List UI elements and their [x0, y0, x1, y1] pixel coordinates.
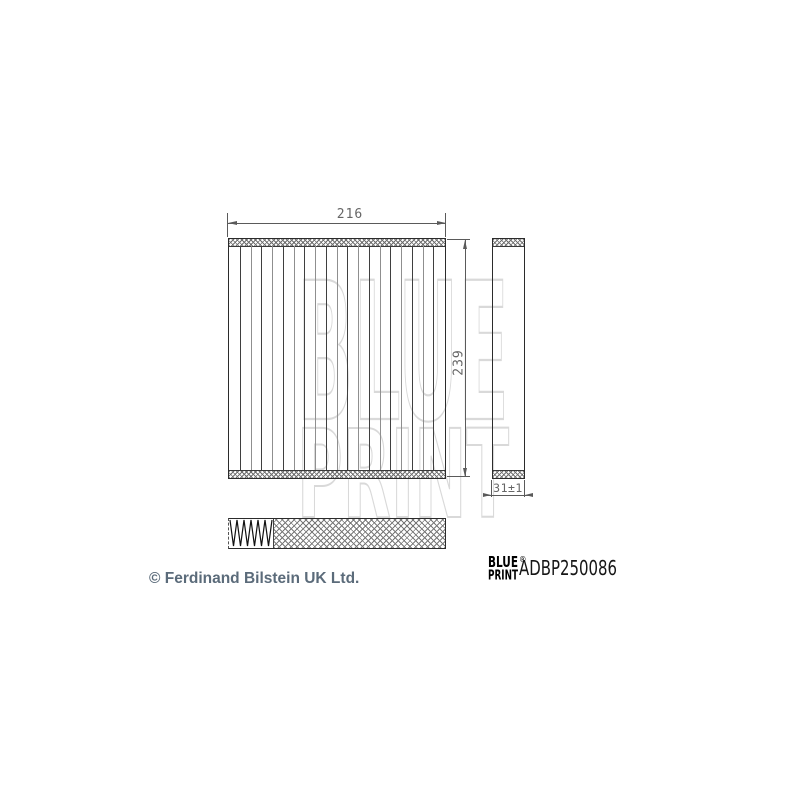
- copyright-notice: © Ferdinand Bilstein UK Ltd.: [149, 570, 359, 588]
- pleat-line: [337, 246, 338, 471]
- pleat-line: [326, 246, 327, 471]
- pleat-line: [390, 246, 391, 471]
- pleat-line: [380, 246, 381, 471]
- pleat-line: [358, 246, 359, 471]
- pleated-media-zigzag: [229, 519, 273, 548]
- front-view-pleats: [229, 246, 445, 471]
- dim-239-arrow-bottom: [463, 468, 467, 477]
- dim-216-line: [228, 223, 446, 224]
- pleat-line: [272, 246, 273, 471]
- pleat-line: [240, 246, 241, 471]
- part-number: ADBP250086: [519, 555, 631, 583]
- zigzag-lines: [229, 519, 273, 547]
- pleat-line: [412, 246, 413, 471]
- filter-front-view: [228, 238, 446, 479]
- pleat-line: [261, 246, 262, 471]
- pleat-line: [251, 246, 252, 471]
- dim-label-height: 239: [453, 342, 468, 384]
- pleat-line: [294, 246, 295, 471]
- logo-word-print: PRINT: [488, 568, 519, 584]
- filter-cross-section-view: [228, 518, 446, 549]
- pleat-line: [304, 246, 305, 471]
- dim-216-arrow-right: [437, 221, 446, 225]
- pleat-line: [347, 246, 348, 471]
- dim-216-arrow-left: [228, 221, 237, 225]
- pleat-line: [369, 246, 370, 471]
- dim-216-ext-left: [227, 213, 228, 237]
- pleat-line: [315, 246, 316, 471]
- pleat-line: [283, 246, 284, 471]
- side-bottom-seal-hatch: [493, 470, 524, 478]
- pleat-line: [423, 246, 424, 471]
- filter-side-view: [492, 238, 525, 479]
- side-top-seal-hatch: [493, 239, 524, 247]
- filter-bottom-seal-hatch: [229, 470, 445, 478]
- frame-crosshatch: [273, 519, 445, 548]
- dim-216-ext-right: [445, 213, 446, 237]
- pleat-line: [401, 246, 402, 471]
- dim-label-width: 216: [300, 208, 400, 222]
- pleat-line: [433, 246, 434, 471]
- dim-239-arrow-top: [463, 240, 467, 249]
- dim-label-depth: 31±1: [489, 481, 527, 495]
- part-number-text: ADBP250086: [519, 556, 617, 580]
